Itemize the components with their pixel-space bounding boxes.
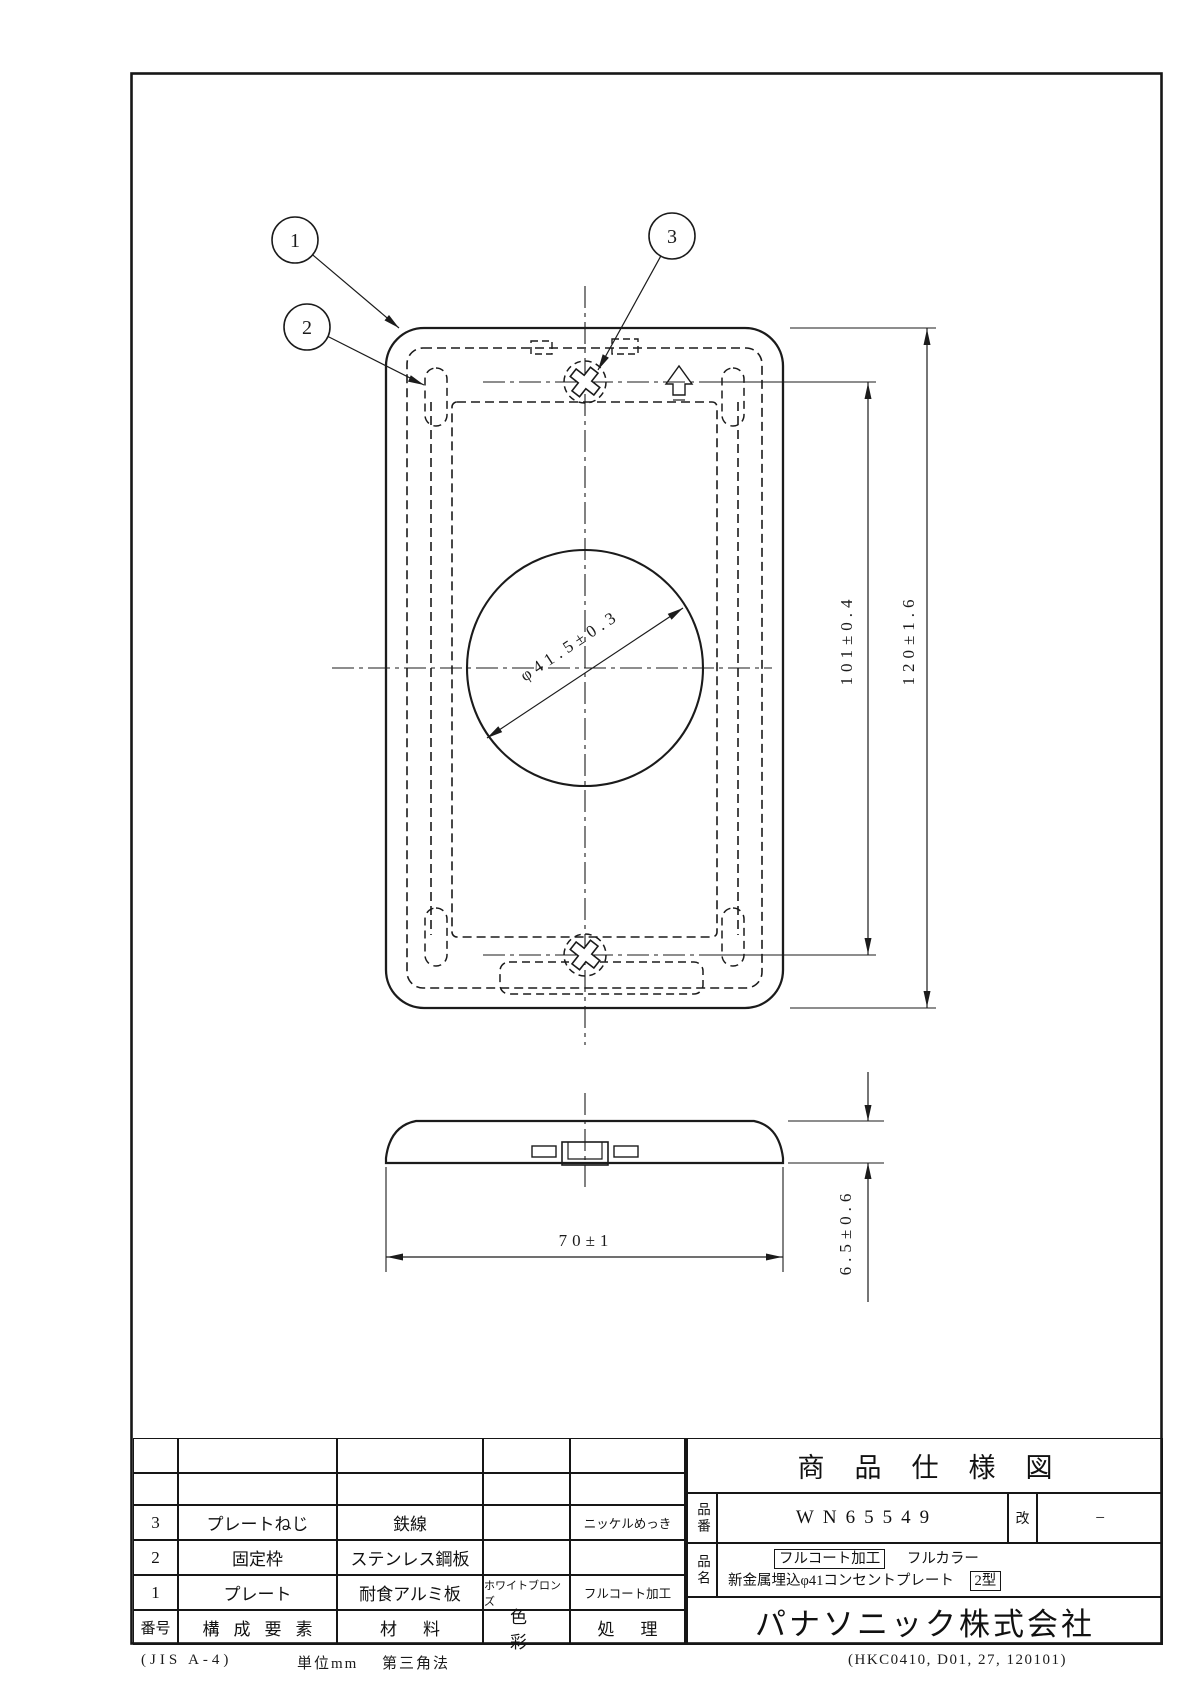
- spec-drawing-page: φ41.5±0.3 101±0.4 120±1.6 1 2: [0, 0, 1196, 1690]
- part-row-material: ステンレス鋼板: [337, 1540, 483, 1575]
- paper-size-note: (JIS A-4): [141, 1652, 232, 1669]
- document-code: (HKC0410, D01, 27, 120101): [848, 1652, 1067, 1669]
- dimension-screw-pitch: 101±0.4: [837, 382, 872, 955]
- parts-header-component: 構成要素: [178, 1610, 337, 1645]
- balloon-callouts: 1 2 3: [272, 213, 695, 385]
- hole-diameter-text: φ41.5±0.3: [517, 606, 623, 686]
- side-slot-right: [614, 1146, 638, 1157]
- top-tab-right-hidden: [612, 339, 638, 354]
- projection-note: 第三角法: [382, 1652, 450, 1673]
- parts-empty-cell: [178, 1473, 337, 1505]
- product-series: フルカラー: [907, 1551, 979, 1567]
- company-name: パナソニック株式会社: [685, 1597, 1163, 1645]
- part-row-process: [570, 1540, 685, 1575]
- product-name-line1: フルコート加工 フルカラー: [718, 1548, 979, 1570]
- parts-header-process: 処理: [570, 1610, 685, 1645]
- drawing-title: 商品仕様図: [685, 1438, 1163, 1493]
- frame-hook-top-right-hidden: [722, 368, 744, 426]
- frame-hook-bottom-left-hidden: [425, 908, 447, 966]
- product-name: 新金属埋込φ41コンセントプレート: [728, 1573, 954, 1589]
- parts-empty-cell: [570, 1473, 685, 1505]
- part-number-value: WN65549: [717, 1493, 1008, 1543]
- revision-value: −: [1037, 1493, 1163, 1543]
- sheet-border: [132, 74, 1162, 1644]
- frame-hook-bottom-right-hidden: [722, 908, 744, 966]
- part-row-process: ニッケルめっき: [570, 1505, 685, 1540]
- unit-note: 単位mm: [297, 1652, 358, 1673]
- product-coating-badge: フルコート加工: [774, 1549, 885, 1569]
- parts-empty-cell: [337, 1473, 483, 1505]
- part-row-process: フルコート加工: [570, 1575, 685, 1610]
- parts-empty-cell: [133, 1473, 178, 1505]
- part-row-no: 1: [133, 1575, 178, 1610]
- product-type-badge: 2型: [970, 1571, 1002, 1591]
- product-name-line2: 新金属埋込φ41コンセントプレート 2型: [718, 1570, 1001, 1592]
- balloon-2-number: 2: [302, 317, 312, 339]
- product-name-label: 品名: [685, 1543, 717, 1597]
- product-name-cell: フルコート加工 フルカラー 新金属埋込φ41コンセントプレート 2型: [717, 1543, 1163, 1597]
- balloon-1-number: 1: [290, 230, 300, 252]
- dimension-plate-height: 120±1.6: [790, 328, 936, 1008]
- plate-width-text: 70±1: [559, 1231, 614, 1250]
- part-row-material: 耐食アルミ板: [337, 1575, 483, 1610]
- drawing-canvas: φ41.5±0.3 101±0.4 120±1.6 1 2: [0, 0, 1196, 1690]
- parts-empty-cell: [570, 1438, 685, 1473]
- parts-empty-cell: [178, 1438, 337, 1473]
- dimension-plate-thickness: 6.5±0.6: [788, 1072, 884, 1302]
- screw-pitch-text: 101±0.4: [837, 594, 856, 685]
- revision-label: 改: [1008, 1493, 1037, 1543]
- plate-thickness-text: 6.5±0.6: [836, 1189, 855, 1276]
- part-row-color: [483, 1540, 570, 1575]
- part-row-component: プレートねじ: [178, 1505, 337, 1540]
- parts-empty-cell: [337, 1438, 483, 1473]
- parts-empty-cell: [483, 1473, 570, 1505]
- part-row-color: [483, 1505, 570, 1540]
- part-row-component: プレート: [178, 1575, 337, 1610]
- balloon-2: 2: [284, 304, 424, 385]
- parts-header-color: 色彩: [483, 1610, 570, 1645]
- part-row-no: 2: [133, 1540, 178, 1575]
- plate-height-text: 120±1.6: [899, 594, 918, 685]
- part-row-component: 固定枠: [178, 1540, 337, 1575]
- part-row-material: 鉄線: [337, 1505, 483, 1540]
- parts-header-no: 番号: [133, 1610, 178, 1645]
- balloon-3-number: 3: [667, 226, 677, 248]
- front-view: [332, 286, 876, 1045]
- up-arrow-mark-icon: [666, 366, 692, 395]
- side-slot-left: [532, 1146, 556, 1157]
- part-row-no: 3: [133, 1505, 178, 1540]
- parts-empty-cell: [483, 1438, 570, 1473]
- parts-empty-cell: [133, 1438, 178, 1473]
- part-number-label: 品番: [685, 1493, 717, 1543]
- parts-header-material: 材料: [337, 1610, 483, 1645]
- frame-hook-top-left-hidden: [425, 368, 447, 426]
- side-view: [386, 1093, 783, 1190]
- balloon-3: 3: [598, 213, 695, 370]
